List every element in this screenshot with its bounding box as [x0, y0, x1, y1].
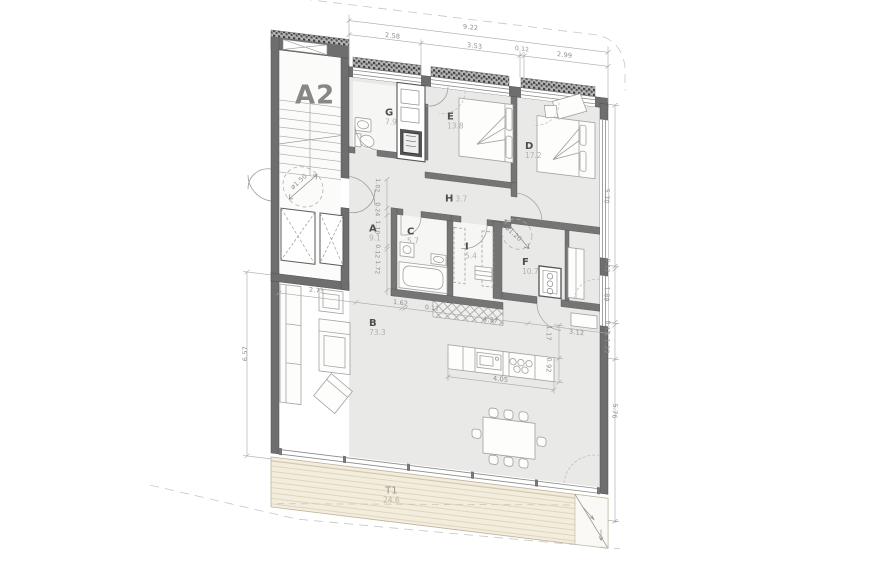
- room-letter-h: H: [445, 194, 453, 205]
- elevator-shafts: [281, 208, 343, 268]
- dim-corr-4: 0.12: [374, 244, 381, 258]
- room-label-d: D 17.2: [525, 141, 542, 161]
- room-label-f: F 10.7: [522, 257, 539, 277]
- dim-mid-4: 4.37: [483, 315, 498, 325]
- dim-top-total: 9.22: [463, 23, 478, 33]
- room-area-i: 5.4: [465, 253, 477, 261]
- dim-right-3: 1.89: [602, 286, 611, 302]
- dim-top-2: 3.53: [467, 41, 482, 51]
- dim-corr-3: 1.10: [374, 220, 381, 234]
- living-room-furniture: [280, 284, 352, 416]
- dim-corr-5: 1.72: [374, 260, 381, 274]
- room-area-d: 17.2: [525, 152, 542, 160]
- dim-left-1: 6.57: [241, 346, 249, 361]
- dim-right-6: 5.76: [610, 403, 619, 419]
- terrace-area: 24.6: [383, 497, 400, 505]
- room-label-h: H 3.7: [445, 194, 467, 205]
- bed-double-d: [537, 116, 595, 179]
- dim-kitchen-gap: 1.17: [544, 325, 553, 341]
- bed-double-e: [459, 98, 513, 163]
- dim-mid-1: 2.73: [309, 286, 324, 296]
- unit-label: A2: [295, 80, 335, 110]
- dim-mid-2: 1.62: [393, 298, 408, 308]
- room-area-g: 7.9: [385, 119, 397, 127]
- room-label-c: C 5.7: [407, 226, 419, 246]
- dim-right-1: 5.70: [602, 188, 611, 204]
- dim-right-2: 0.12: [604, 258, 611, 272]
- room-label-b: B 73.3: [369, 318, 386, 338]
- dim-top-4: 2.99: [557, 50, 572, 60]
- dim-corr-1: 1.02: [374, 178, 381, 192]
- room-area-a: 9.1: [369, 235, 381, 243]
- room-area-e: 13.8: [447, 123, 464, 131]
- room-area-f: 10.7: [522, 268, 539, 276]
- dim-right-4: 0.12: [604, 320, 611, 334]
- room-area-b: 73.3: [369, 329, 386, 337]
- terrace-label: T1 24.6: [383, 486, 400, 506]
- room-label-g: G 7.9: [385, 108, 397, 128]
- dim-right-5: 1.22: [602, 338, 611, 354]
- dim-top-1: 2.58: [385, 31, 400, 41]
- floor-plan: A2 G 7.9 E 13.8 D 17.2 H 3.7 A 9.1 C 5.7…: [133, 0, 653, 586]
- dim-mid-5: 3.12: [569, 328, 584, 338]
- service-shaft: [397, 82, 425, 161]
- room-area-c: 5.7: [407, 238, 419, 246]
- dim-kitchen-w: 4.05: [493, 374, 508, 384]
- dim-corr-2: 0.24: [374, 202, 381, 216]
- room-label-e: E 13.8: [447, 112, 464, 132]
- room-label-i: I 5.4: [465, 241, 477, 261]
- room-area-h: 3.7: [455, 196, 467, 204]
- floor-plan-page: { "plan": { "unit": "A2", "rooms": { "g"…: [0, 0, 896, 564]
- dim-kitchen-d: 0.92: [544, 357, 553, 373]
